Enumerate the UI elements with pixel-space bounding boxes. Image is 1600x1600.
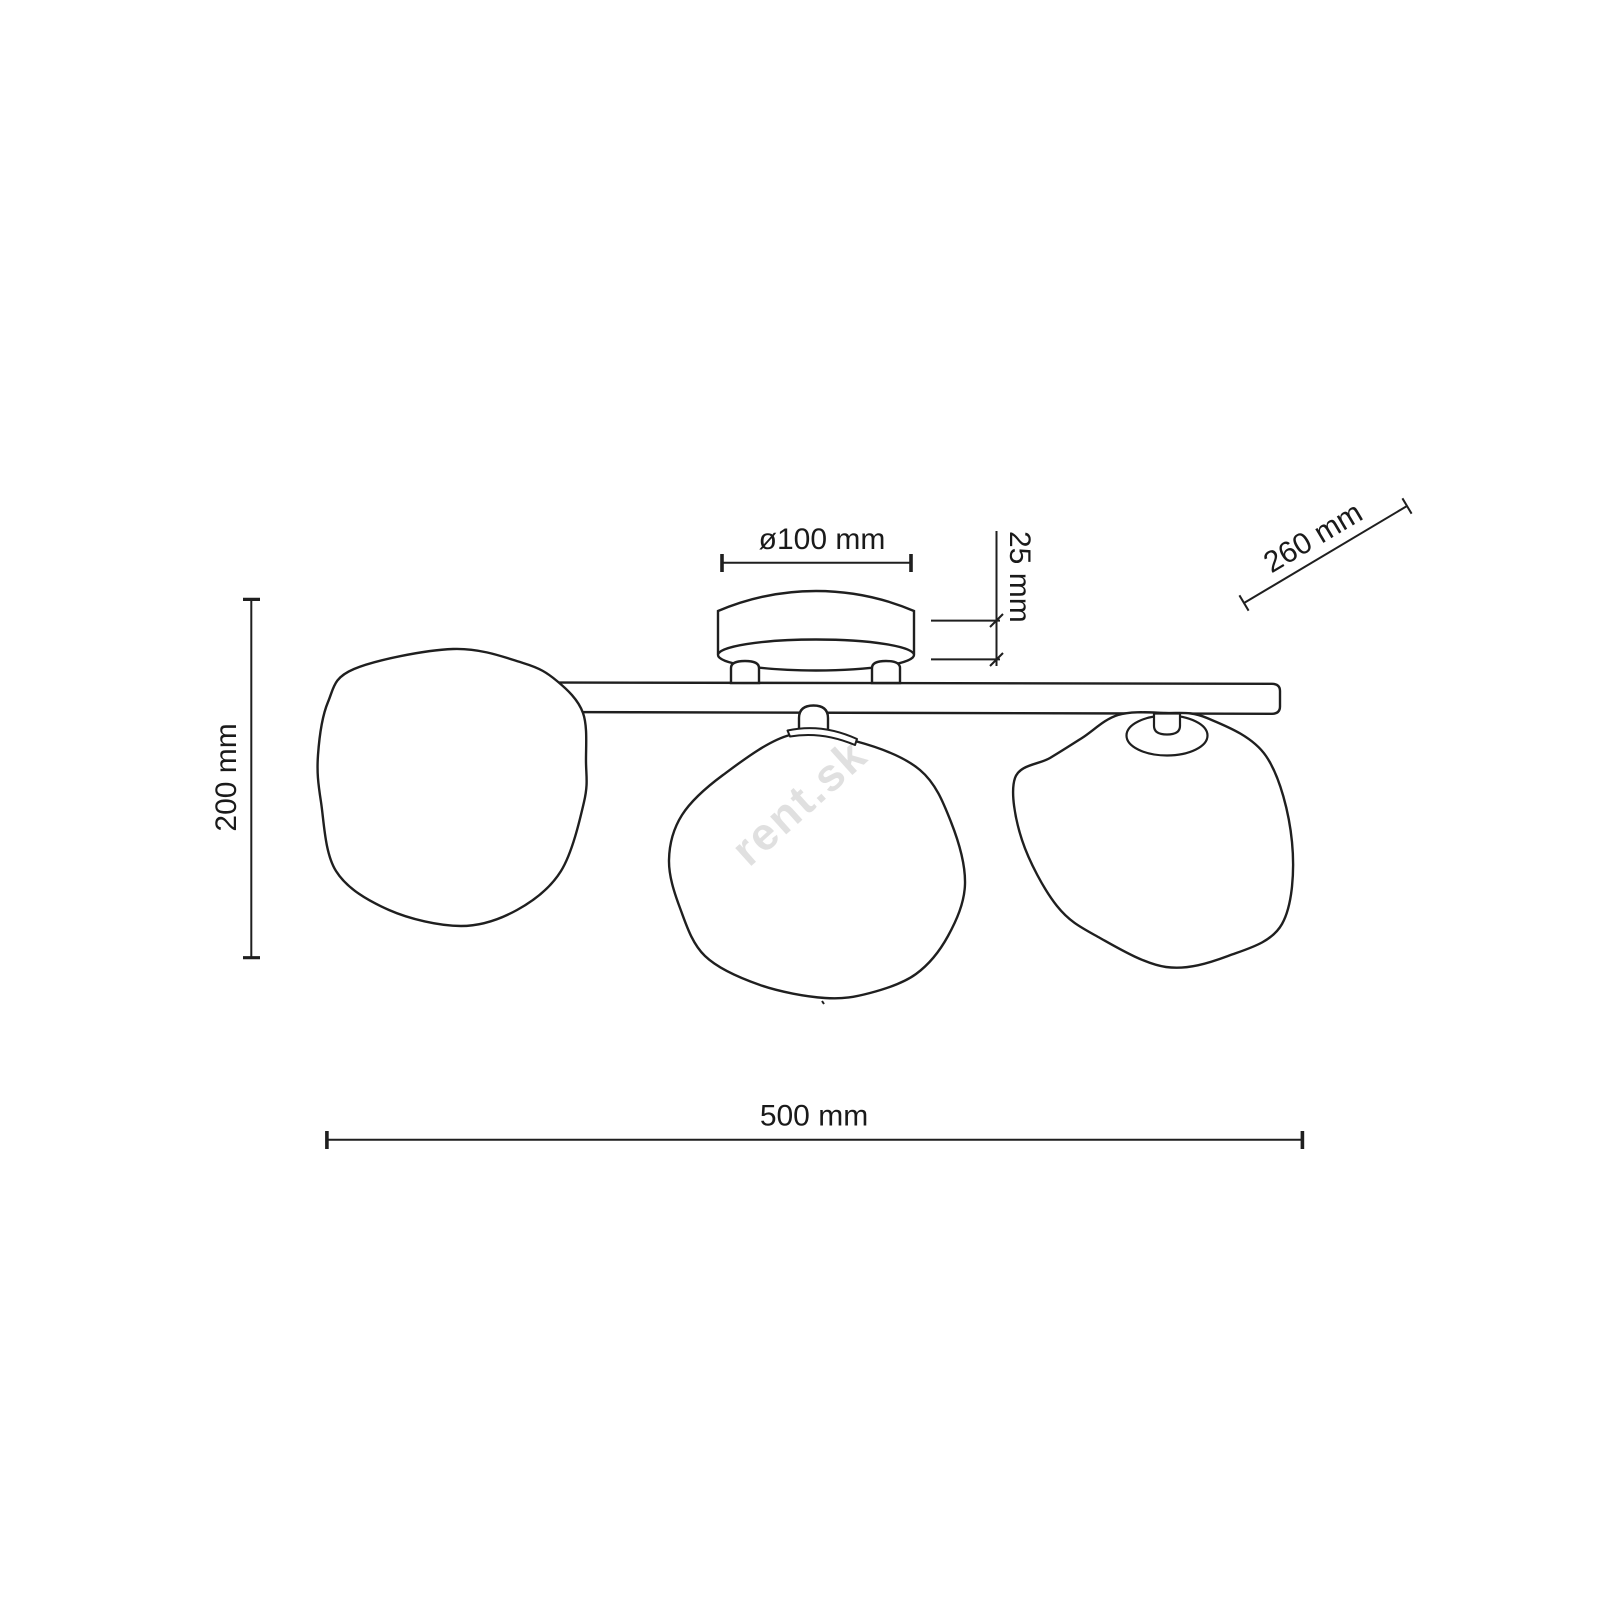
svg-text:200 mm: 200 mm: [210, 723, 243, 831]
svg-text:25 mm: 25 mm: [1003, 531, 1036, 623]
svg-text:500 mm: 500 mm: [760, 1100, 868, 1133]
svg-text:ø100 mm: ø100 mm: [759, 523, 886, 556]
